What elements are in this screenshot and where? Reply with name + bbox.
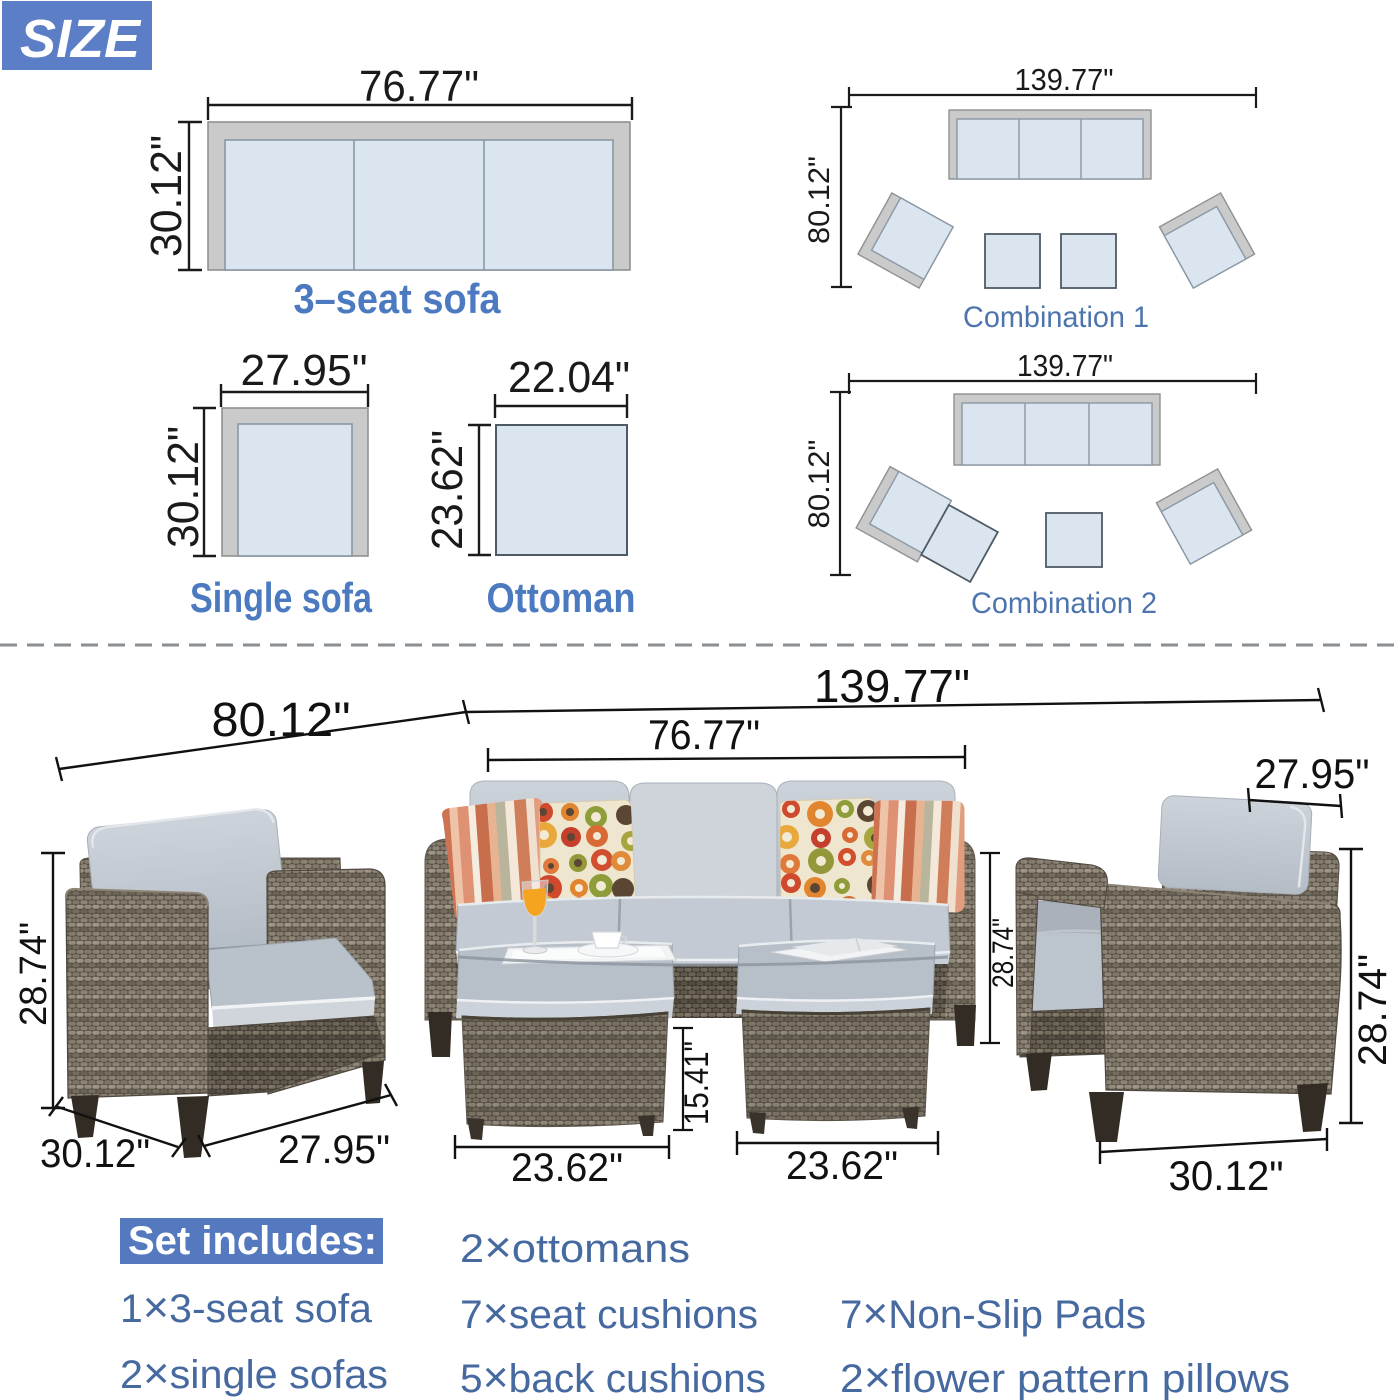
svg-text:80.12": 80.12" (803, 440, 836, 529)
svg-text:22.04": 22.04" (508, 353, 630, 402)
svg-text:76.77": 76.77" (359, 62, 479, 111)
svg-text:76.77": 76.77" (648, 711, 760, 758)
svg-text:15.41": 15.41" (678, 1041, 716, 1125)
svg-text:23.62": 23.62" (511, 1146, 623, 1190)
svg-text:80.12": 80.12" (803, 156, 836, 244)
svg-text:30.12": 30.12" (1169, 1152, 1284, 1199)
svg-text:2×flower pattern pillows: 2×flower pattern pillows (840, 1353, 1290, 1400)
svg-text:Combination 2: Combination 2 (971, 587, 1157, 620)
svg-text:30.12": 30.12" (40, 1132, 150, 1176)
svg-text:Combination 1: Combination 1 (963, 301, 1149, 334)
svg-text:28.74": 28.74" (13, 922, 55, 1026)
svg-text:Set includes:: Set includes: (128, 1219, 377, 1263)
svg-text:7×seat cushions: 7×seat cushions (460, 1289, 758, 1338)
svg-text:2×ottomans: 2×ottomans (460, 1223, 690, 1272)
svg-text:7×Non-Slip Pads: 7×Non-Slip Pads (840, 1289, 1146, 1338)
svg-text:30.12": 30.12" (142, 135, 191, 257)
svg-text:3–seat sofa: 3–seat sofa (294, 275, 502, 322)
svg-text:27.95": 27.95" (278, 1128, 390, 1172)
svg-text:139.77": 139.77" (1017, 348, 1113, 383)
svg-text:80.12": 80.12" (212, 694, 351, 747)
svg-text:5×back cushions: 5×back cushions (460, 1353, 766, 1400)
svg-text:2×single sofas: 2×single sofas (120, 1349, 388, 1398)
svg-text:23.62": 23.62" (423, 430, 472, 550)
svg-text:28.74": 28.74" (987, 918, 1020, 988)
svg-text:139.77": 139.77" (814, 660, 970, 712)
svg-text:27.95": 27.95" (1255, 750, 1370, 797)
svg-text:SIZE: SIZE (20, 9, 142, 69)
svg-text:1×3-seat sofa: 1×3-seat sofa (120, 1283, 373, 1332)
svg-text:27.95": 27.95" (241, 346, 368, 395)
svg-text:139.77": 139.77" (1015, 62, 1114, 97)
svg-text:23.62": 23.62" (786, 1144, 898, 1188)
svg-text:Ottoman: Ottoman (487, 574, 636, 621)
svg-text:Single sofa: Single sofa (190, 574, 373, 621)
svg-text:28.74": 28.74" (1351, 954, 1395, 1066)
svg-text:30.12": 30.12" (159, 426, 208, 548)
